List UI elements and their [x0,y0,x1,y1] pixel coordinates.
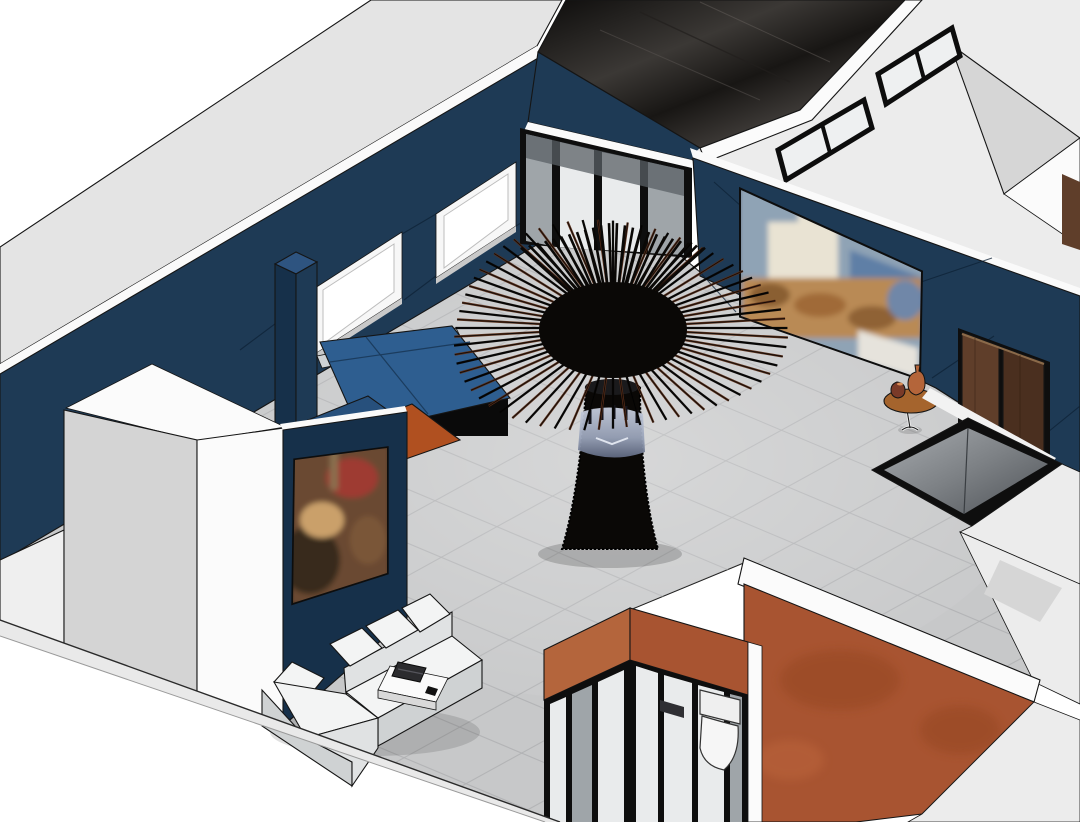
fan-core [539,282,687,378]
render-canvas[interactable] [0,0,1080,822]
navy-column[interactable] [275,252,317,446]
wall-post [748,642,762,822]
closet-outer-white [197,428,284,728]
wood-door-sliver [1062,174,1080,250]
3d-viewport[interactable] [0,0,1080,822]
